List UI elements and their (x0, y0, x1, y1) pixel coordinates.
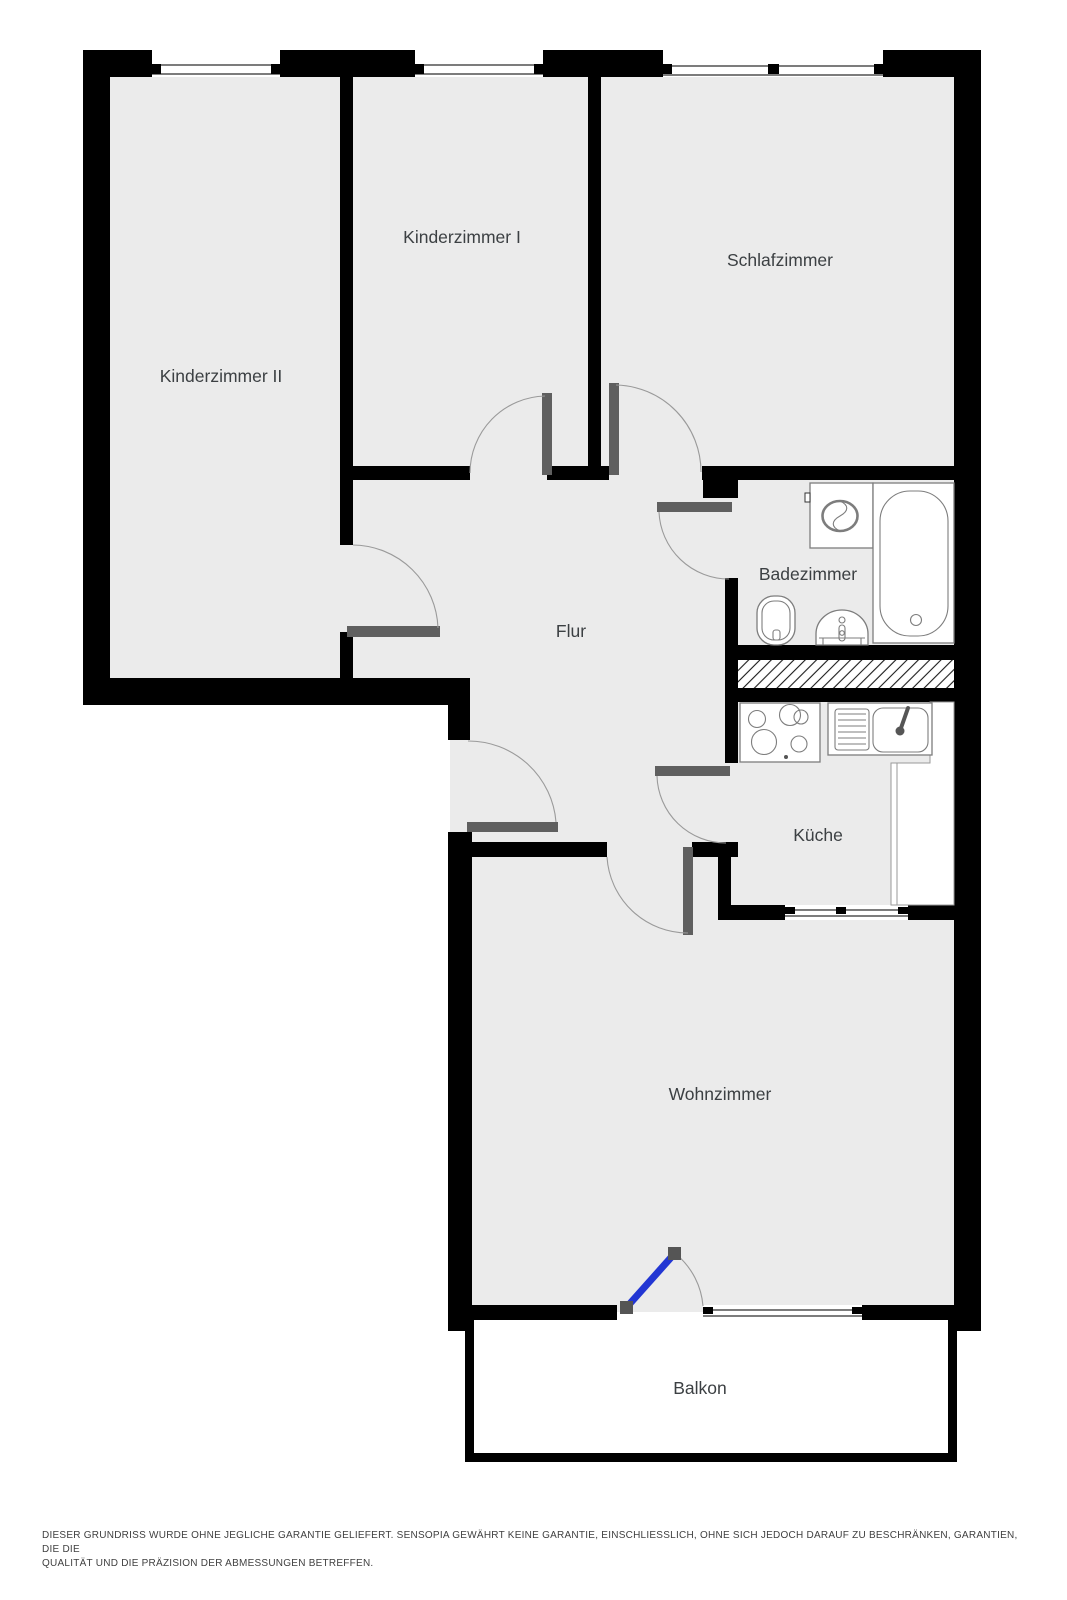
room-label-kueche: Küche (793, 825, 843, 845)
toilet-icon (757, 596, 795, 645)
wall-kz2-bottom (83, 678, 470, 705)
wall-wohnzimmer-top (472, 842, 607, 857)
wall-wohnzimmer-bottom-left (448, 1305, 617, 1320)
window-kueche (785, 905, 908, 920)
wall-kueche-top (725, 688, 981, 702)
wall-bad-kueche-left (725, 578, 738, 763)
room-label-badezimmer: Badezimmer (759, 564, 857, 584)
room-label-flur: Flur (556, 621, 586, 641)
floor-plan-svg: Kinderzimmer II Kinderzimmer I Schlafzim… (0, 0, 1067, 1600)
room-label-kinderzimmer-1: Kinderzimmer I (403, 227, 521, 247)
wall-kueche-corner-h (692, 842, 738, 857)
wall-kz1-bottom (340, 466, 470, 480)
room-label-balkon: Balkon (673, 1378, 727, 1398)
room-label-kinderzimmer-2: Kinderzimmer II (160, 366, 283, 386)
wall-wohnzimmer-bottom-right (862, 1305, 981, 1320)
disclaimer-line-2: QUALITÄT UND DIE PRÄZISION DER ABMESSUNG… (42, 1557, 1032, 1571)
wall-entry-jamb (448, 705, 470, 740)
washing-machine-icon (805, 483, 873, 548)
wall-schlafzimmer-bottom (702, 466, 954, 480)
wall-top-2 (280, 50, 415, 77)
room-label-schlafzimmer: Schlafzimmer (727, 250, 833, 270)
wall-top-3 (543, 50, 663, 77)
window-kinderzimmer-2 (152, 50, 280, 77)
window-wohnzimmer-balkon (703, 1305, 862, 1320)
wall-left (83, 50, 110, 705)
wall-bad-bottom (725, 645, 954, 660)
window-schlafzimmer (663, 50, 883, 77)
stove-icon (740, 703, 820, 762)
wall-kueche-corner-v (718, 857, 731, 905)
wall-flur-top-mid (547, 466, 609, 480)
room-label-wohnzimmer: Wohnzimmer (669, 1084, 772, 1104)
kitchen-sink-icon (828, 703, 932, 755)
floor-area-left (97, 60, 470, 692)
shaft-hatched (738, 660, 954, 688)
wall-bad-jamb (703, 466, 738, 498)
bathtub-icon (873, 483, 954, 643)
wall-kz1-schlafzimmer (588, 77, 601, 480)
wall-kz2-flur-lower (340, 632, 353, 678)
wall-wohnzimmer-left (448, 832, 472, 1331)
wall-kueche-bottom-right (908, 905, 954, 920)
wall-kueche-bottom-left (718, 905, 785, 920)
disclaimer-line-1: DIESER GRUNDRISS WURDE OHNE JEGLICHE GAR… (42, 1529, 1032, 1557)
floor-plan: Kinderzimmer II Kinderzimmer I Schlafzim… (0, 0, 1067, 1600)
disclaimer: DIESER GRUNDRISS WURDE OHNE JEGLICHE GAR… (42, 1529, 1032, 1571)
window-kinderzimmer-1 (415, 50, 543, 77)
